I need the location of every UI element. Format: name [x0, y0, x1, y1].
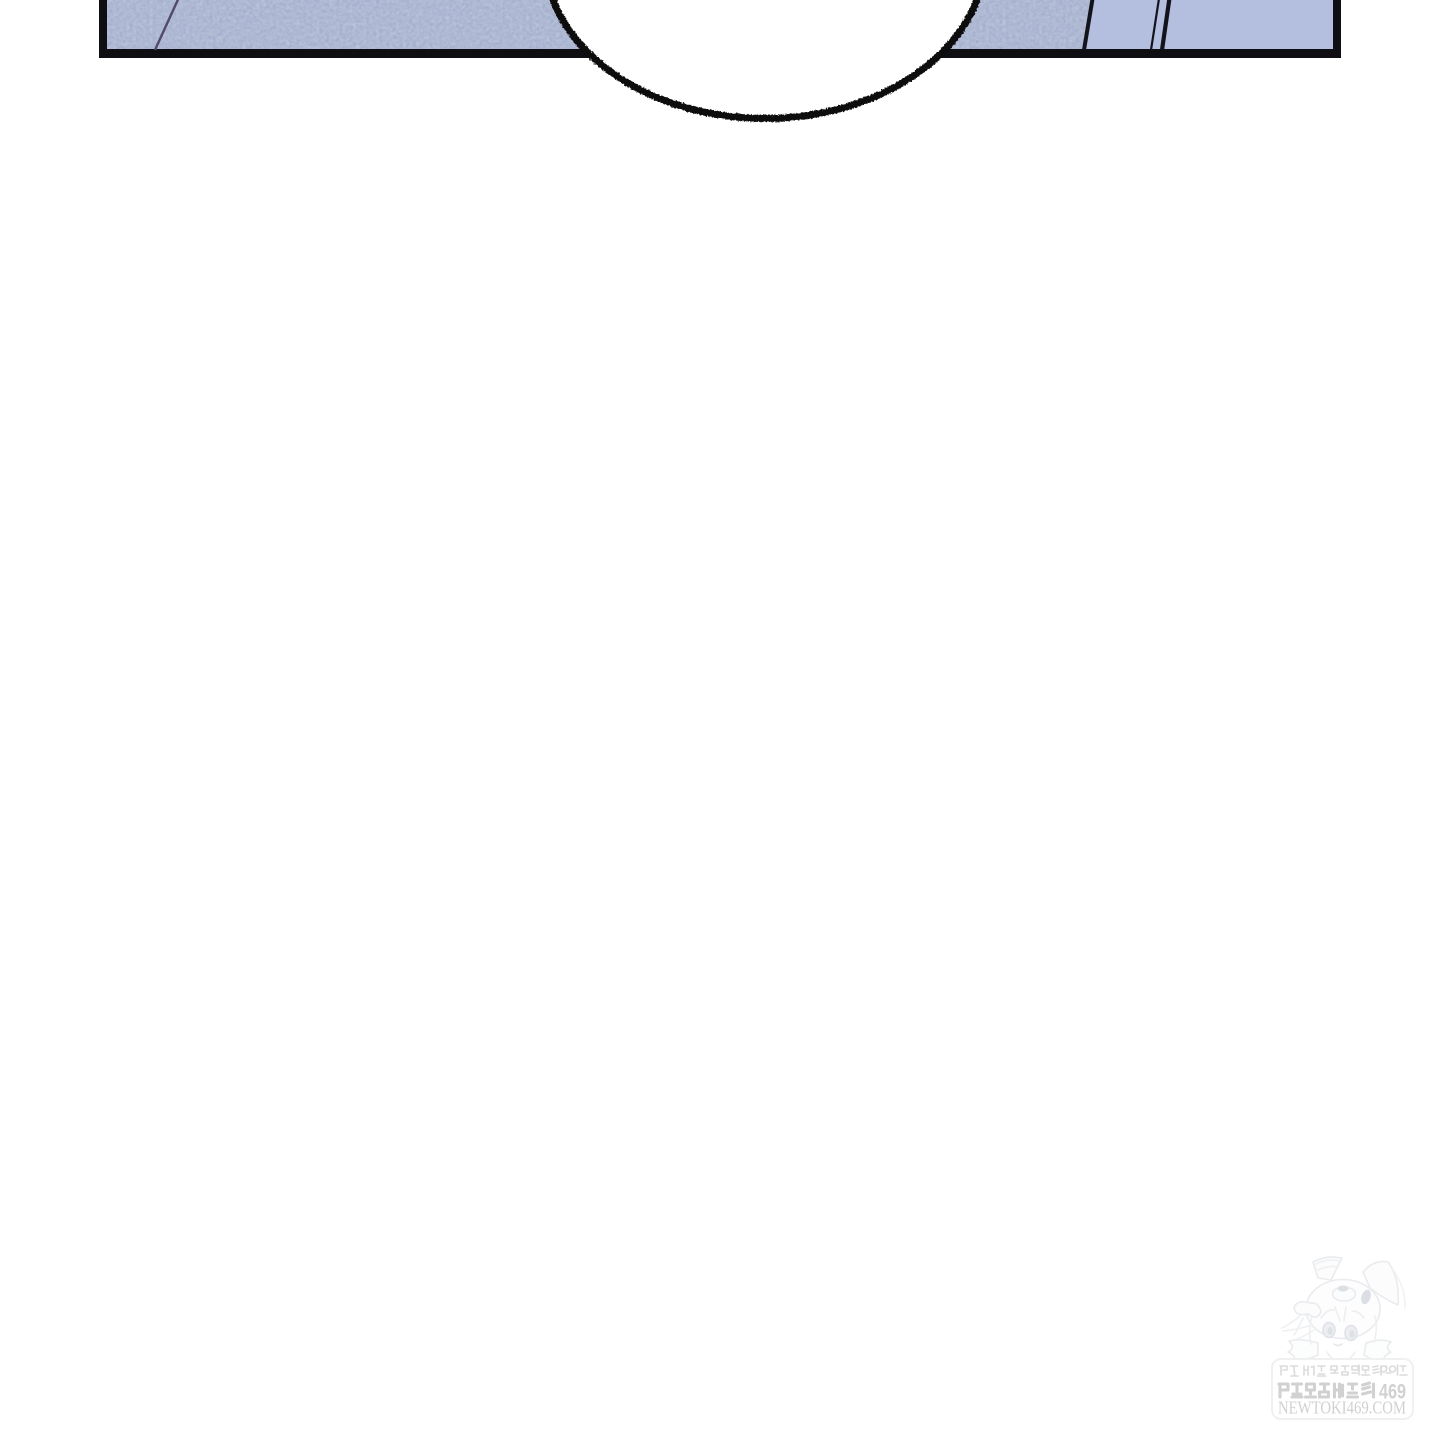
- svg-text:NEWTOKI469.COM: NEWTOKI469.COM: [1278, 1398, 1406, 1418]
